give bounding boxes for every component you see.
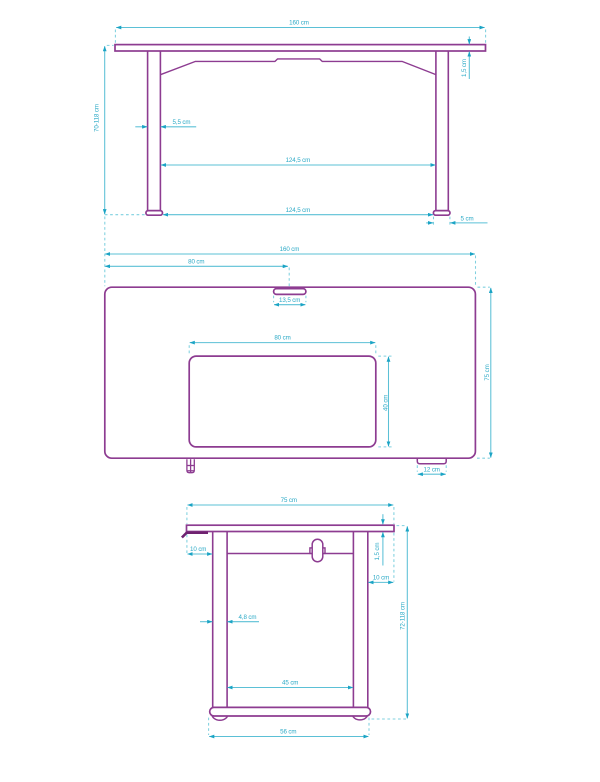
svg-text:70-118 cm: 70-118 cm (93, 104, 100, 132)
svg-text:5,5 cm: 5,5 cm (173, 119, 191, 126)
svg-text:160 cm: 160 cm (280, 246, 300, 253)
svg-text:75 cm: 75 cm (281, 497, 297, 504)
svg-text:124,5 cm: 124,5 cm (286, 157, 311, 164)
svg-text:45 cm: 45 cm (282, 680, 298, 687)
svg-text:75 cm: 75 cm (484, 364, 491, 380)
svg-text:4,8 cm: 4,8 cm (239, 614, 257, 621)
svg-text:12 cm: 12 cm (424, 466, 440, 473)
svg-text:124,5 cm: 124,5 cm (286, 207, 311, 214)
svg-text:72-118 cm: 72-118 cm (399, 602, 406, 630)
svg-text:10 cm: 10 cm (373, 574, 389, 581)
svg-text:10 cm: 10 cm (190, 546, 206, 553)
svg-text:13,5 cm: 13,5 cm (279, 297, 300, 304)
svg-text:1,5 cm: 1,5 cm (374, 543, 381, 561)
svg-text:56 cm: 56 cm (280, 729, 296, 736)
svg-text:5 cm: 5 cm (460, 215, 473, 222)
svg-text:1,5 cm: 1,5 cm (461, 59, 468, 77)
svg-text:80 cm: 80 cm (274, 335, 290, 342)
svg-text:40 cm: 40 cm (383, 395, 390, 411)
svg-text:160 cm: 160 cm (289, 20, 309, 27)
svg-text:80 cm: 80 cm (188, 258, 204, 265)
